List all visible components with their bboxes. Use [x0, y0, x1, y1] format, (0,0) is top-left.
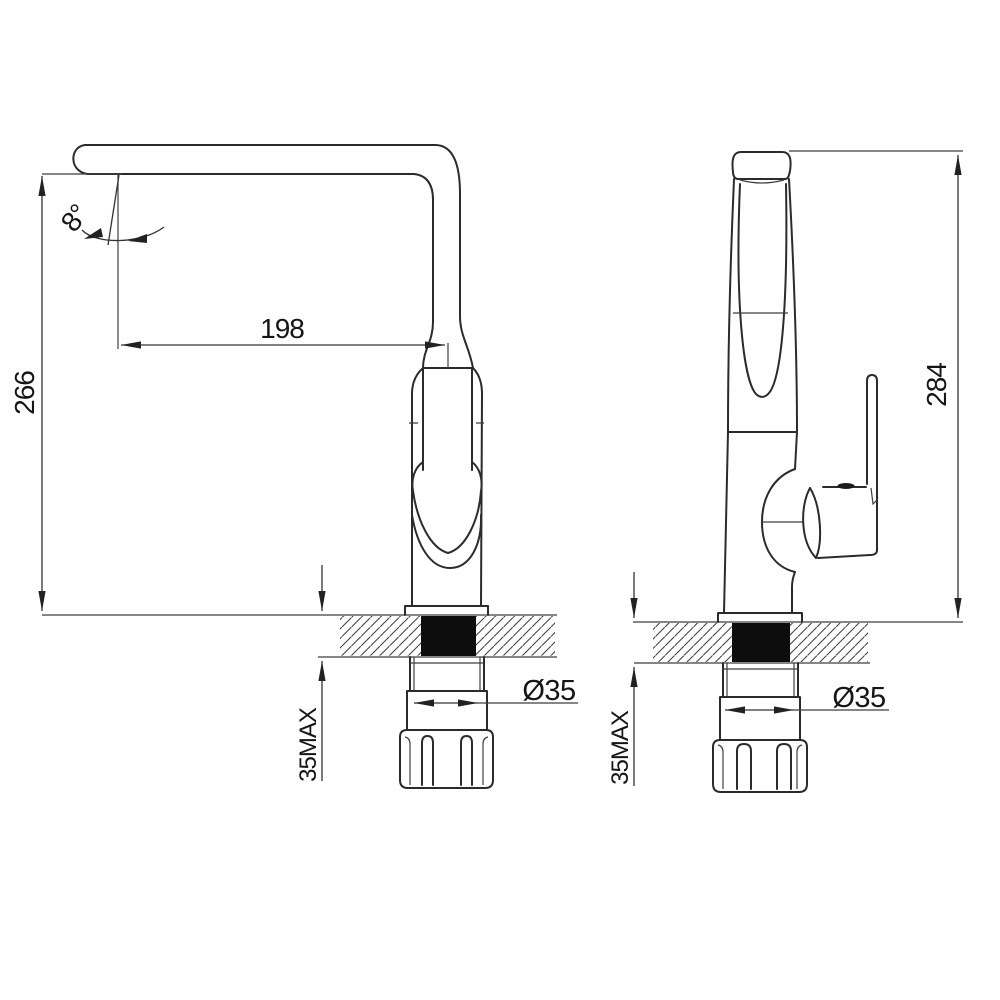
nut-slot-1	[422, 736, 433, 785]
side-mounting-hardware	[400, 657, 493, 788]
shank-edges	[410, 657, 484, 691]
counter-hatch-right-segment	[476, 616, 555, 656]
front-countertop	[633, 622, 963, 663]
dim-label-spout-reach: 198	[260, 313, 304, 344]
nut-slot-2	[461, 736, 472, 785]
nut-slot-1	[737, 744, 751, 789]
body-left-edge	[412, 368, 423, 605]
body-left-edge	[728, 179, 734, 432]
base-flange	[718, 613, 802, 622]
dim-label-hole-diameter: Ø35	[832, 682, 885, 714]
handle-joint-ring-right	[810, 488, 820, 558]
spout-tip-cap	[73, 145, 88, 174]
technical-drawing-page: 198 266 8° 35MAX Ø35	[0, 0, 1000, 1000]
mounting-nut	[400, 730, 493, 788]
handle-pivot	[838, 483, 855, 489]
washer	[720, 697, 800, 739]
spout-tip-underline	[740, 180, 784, 183]
angle-ref-line	[108, 175, 119, 245]
dim-label-overall-height: 284	[921, 363, 952, 407]
front-faucet-outline	[718, 152, 877, 622]
dim-label-spout-angle: 8°	[55, 199, 95, 238]
dim-label-hole-diameter: Ø35	[522, 675, 575, 707]
faucet-technical-drawing: 198 266 8° 35MAX Ø35	[0, 0, 1000, 1000]
counter-hatch-left-segment	[340, 616, 421, 656]
spout-tip-cap	[732, 152, 790, 179]
base-flange	[405, 606, 488, 615]
nut-slot-2	[777, 744, 791, 789]
front-view: 284 35MAX Ø35	[607, 151, 963, 792]
front-mounting-hardware	[713, 663, 807, 792]
shank-inner-lines	[723, 663, 798, 697]
body-right-edge	[789, 179, 797, 432]
handle-base-right	[818, 488, 877, 558]
column-left-edge	[724, 432, 728, 613]
column-right-lower	[792, 572, 795, 613]
dim-label-spout-height: 266	[9, 371, 40, 415]
handle-front-rim	[412, 462, 481, 553]
side-dimensions: 198 266 8° 35MAX Ø35	[9, 174, 578, 782]
spout-front-groove	[738, 184, 786, 397]
dim-label-counter-thickness: 35MAX	[607, 710, 634, 785]
handle-lever	[867, 375, 877, 487]
angle-arrowhead-right	[128, 234, 147, 243]
mounting-nut	[713, 740, 807, 792]
washer	[407, 691, 487, 729]
column-right-upper	[795, 432, 797, 469]
shank-edges	[723, 663, 798, 697]
mounting-hole	[421, 616, 476, 656]
side-countertop	[42, 615, 557, 657]
counter-hatch-left-segment	[653, 623, 732, 662]
side-view: 198 266 8° 35MAX Ø35	[9, 145, 578, 788]
side-faucet-outline	[73, 145, 488, 615]
counter-hatch-right-segment	[790, 623, 868, 662]
dim-label-counter-thickness: 35MAX	[295, 707, 322, 782]
nut-edge-ribs	[718, 745, 802, 789]
nut-edge-ribs	[405, 737, 488, 785]
mounting-hole	[732, 623, 790, 662]
shank-inner-lines	[410, 657, 484, 691]
valve-sphere	[762, 469, 795, 572]
front-dimensions: 284 35MAX Ø35	[607, 151, 963, 786]
